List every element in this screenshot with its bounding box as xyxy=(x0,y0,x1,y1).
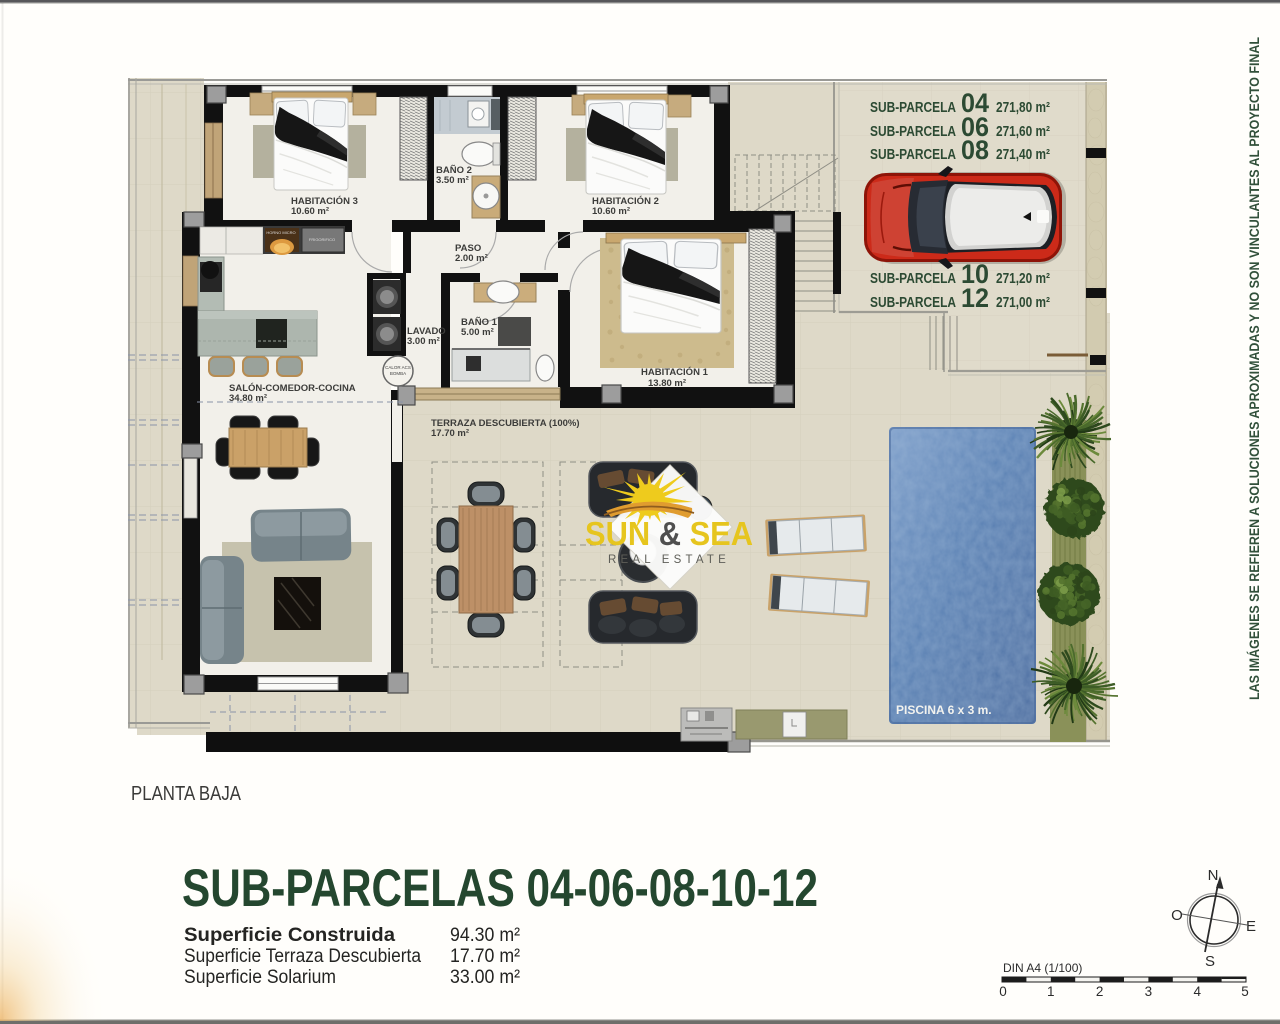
svg-text:SUB-PARCELA: SUB-PARCELA xyxy=(870,147,956,163)
svg-text:HABITACIÓN 1: HABITACIÓN 1 xyxy=(641,366,709,378)
svg-text:REAL ESTATE: REAL ESTATE xyxy=(608,554,730,566)
svg-text:34.80 m²: 34.80 m² xyxy=(229,393,267,404)
svg-text:94.30 m²: 94.30 m² xyxy=(450,925,520,946)
svg-text:2.00 m²: 2.00 m² xyxy=(455,253,488,264)
svg-text:SUB-PARCELA: SUB-PARCELA xyxy=(870,271,956,287)
svg-text:PLANTA BAJA: PLANTA BAJA xyxy=(131,783,242,805)
svg-text:271,80 m²: 271,80 m² xyxy=(996,100,1050,116)
svg-text:0: 0 xyxy=(999,984,1007,999)
svg-text:Superficie Solarium: Superficie Solarium xyxy=(184,967,336,988)
svg-text:10.60 m²: 10.60 m² xyxy=(592,206,630,217)
svg-text:FRIGORIFICO: FRIGORIFICO xyxy=(309,237,335,242)
svg-text:O: O xyxy=(1171,907,1183,924)
svg-text:SUB-PARCELA: SUB-PARCELA xyxy=(870,100,956,116)
svg-text:10.60 m²: 10.60 m² xyxy=(291,206,329,217)
svg-text:2: 2 xyxy=(1096,984,1104,999)
svg-text:4: 4 xyxy=(1193,984,1201,999)
svg-text:DIN A4 (1/100): DIN A4 (1/100) xyxy=(1003,961,1082,975)
svg-text:S: S xyxy=(1205,953,1215,970)
svg-text:LAS IMÁGENES SE REFIEREN A SOL: LAS IMÁGENES SE REFIEREN A SOLUCIONES AP… xyxy=(1247,37,1262,700)
svg-text:5.00 m²: 5.00 m² xyxy=(461,327,494,338)
svg-text:17.70 m²: 17.70 m² xyxy=(431,428,469,439)
svg-text:Superficie Construida: Superficie Construida xyxy=(184,925,395,946)
svg-text:CALOR ACS: CALOR ACS xyxy=(385,365,411,370)
svg-text:17.70 m²: 17.70 m² xyxy=(450,946,520,967)
svg-text:13.80 m²: 13.80 m² xyxy=(648,378,686,389)
svg-text:12: 12 xyxy=(961,283,989,313)
svg-text:Superficie Terraza Descubierta: Superficie Terraza Descubierta xyxy=(184,946,421,967)
svg-text:271,00 m²: 271,00 m² xyxy=(996,295,1050,311)
svg-text:3: 3 xyxy=(1145,984,1153,999)
svg-text:271,40 m²: 271,40 m² xyxy=(996,147,1050,163)
svg-text:PISCINA 6 x 3 m.: PISCINA 6 x 3 m. xyxy=(896,703,992,717)
svg-text:3.50 m²: 3.50 m² xyxy=(436,175,469,186)
svg-text:SUB-PARCELA: SUB-PARCELA xyxy=(870,124,956,140)
svg-text:N: N xyxy=(1208,867,1219,884)
svg-text:33.00 m²: 33.00 m² xyxy=(450,967,520,988)
svg-text:SUB-PARCELA: SUB-PARCELA xyxy=(870,295,956,311)
svg-text:5: 5 xyxy=(1241,984,1249,999)
svg-text:BOMBA: BOMBA xyxy=(390,371,406,376)
svg-text:271,60 m²: 271,60 m² xyxy=(996,124,1050,140)
svg-text:E: E xyxy=(1246,918,1256,935)
svg-text:1: 1 xyxy=(1047,984,1055,999)
svg-text:271,20 m²: 271,20 m² xyxy=(996,271,1050,287)
svg-text:3.00 m²: 3.00 m² xyxy=(407,336,440,347)
svg-text:SUN & SEA: SUN & SEA xyxy=(585,515,753,552)
svg-text:SUB-PARCELAS 04-06-08-10-12: SUB-PARCELAS 04-06-08-10-12 xyxy=(182,859,818,918)
svg-text:HORNO MICRO: HORNO MICRO xyxy=(266,230,295,235)
svg-text:08: 08 xyxy=(961,135,989,165)
